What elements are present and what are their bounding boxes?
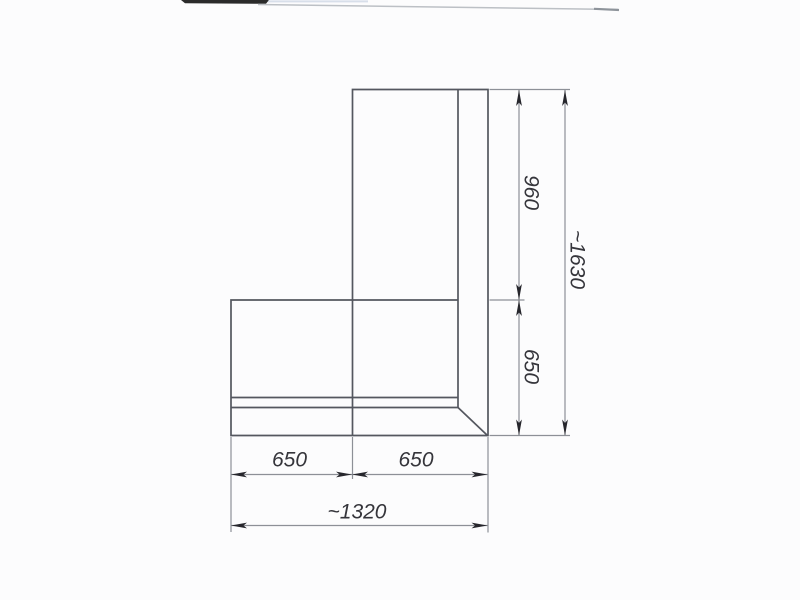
scan-artifact-blue-tint [268,0,368,2]
dimension-label-1630: ~1630 [566,230,589,289]
corner-unit-outline [231,90,488,436]
scanned-drawing-page: 650 650 ~1320 960 650 ~1630 [0,0,800,600]
scan-artifact-top-edge [181,0,619,10]
dimension-label-960: 960 [520,175,543,210]
dimension-bottom-widths: 650 650 [231,449,488,478]
mitre-diagonal-line [458,408,488,436]
dimension-total-height: ~1630 [562,90,588,436]
outer-boundary [231,90,488,436]
dimension-right-heights: 960 650 [516,90,542,436]
dimension-label-650-right: 650 [398,449,433,472]
dimension-total-width: ~1320 [231,501,488,529]
dimension-label-650-depth: 650 [520,349,543,384]
dimension-label-1320: ~1320 [328,501,387,524]
scan-artifact-line-end [594,9,619,10]
technical-drawing-canvas: 650 650 ~1320 960 650 ~1630 [0,0,800,600]
scan-artifact-faint-line [258,5,618,10]
dimension-label-650-left: 650 [272,449,307,472]
scan-artifact-dark-bar [181,0,269,4]
